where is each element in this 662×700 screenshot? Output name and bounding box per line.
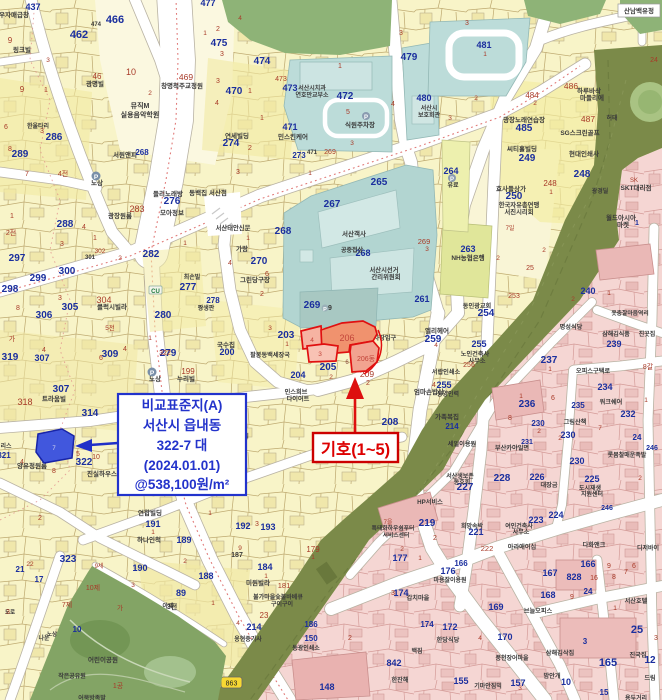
svg-text:200: 200 [219, 347, 234, 357]
svg-text:471: 471 [307, 150, 318, 156]
svg-text:2: 2 [216, 26, 220, 33]
svg-text:3: 3 [6, 609, 10, 616]
svg-text:246: 246 [646, 445, 658, 452]
svg-text:서원앤피: 서원앤피 [113, 150, 137, 159]
svg-text:319: 319 [2, 352, 19, 363]
svg-text:9: 9 [570, 594, 574, 601]
svg-text:273: 273 [292, 151, 306, 160]
svg-text:471: 471 [282, 122, 297, 132]
svg-text:10: 10 [561, 677, 571, 687]
svg-text:링크빌: 링크빌 [13, 45, 31, 54]
svg-text:265: 265 [371, 177, 388, 188]
svg-text:300: 300 [59, 266, 76, 277]
svg-text:7제: 7제 [62, 601, 72, 609]
svg-text:월드아시아: 월드아시아 [606, 213, 636, 222]
svg-text:10: 10 [73, 625, 82, 634]
svg-text:4: 4 [42, 347, 46, 354]
svg-text:177: 177 [392, 553, 407, 563]
svg-text:노인건축사: 노인건축사 [461, 350, 490, 358]
svg-text:2: 2 [474, 95, 478, 102]
svg-text:253: 253 [508, 293, 520, 300]
svg-text:3: 3 [60, 241, 64, 248]
svg-text:8: 8 [508, 415, 512, 422]
svg-text:1: 1 [548, 366, 552, 373]
svg-text:7: 7 [25, 171, 29, 178]
svg-text:17: 17 [35, 575, 44, 584]
svg-text:1: 1 [285, 341, 289, 348]
svg-text:3: 3 [350, 140, 354, 147]
svg-text:가족복집: 가족복집 [435, 412, 459, 421]
svg-text:268: 268 [275, 226, 292, 237]
svg-text:1: 1 [10, 213, 14, 220]
svg-text:드림: 드림 [644, 674, 655, 682]
svg-text:사무소: 사무소 [513, 528, 530, 536]
svg-text:가랑: 가랑 [236, 244, 248, 253]
svg-text:192: 192 [235, 521, 250, 531]
svg-text:워크쉐어: 워크쉐어 [600, 398, 623, 406]
svg-text:1: 1 [264, 573, 268, 580]
svg-text:269: 269 [418, 237, 431, 246]
svg-text:3: 3 [465, 20, 469, 27]
svg-text:16: 16 [590, 575, 598, 582]
svg-text:863: 863 [226, 681, 238, 688]
svg-text:여인건축사: 여인건축사 [505, 522, 533, 530]
svg-text:150: 150 [304, 634, 318, 643]
svg-text:2: 2 [183, 558, 187, 565]
svg-text:248: 248 [543, 179, 557, 188]
svg-text:옷충잘마음역리: 옷충잘마음역리 [611, 309, 648, 317]
svg-text:205: 205 [320, 362, 337, 373]
svg-text:239: 239 [606, 339, 621, 349]
svg-text:219: 219 [419, 518, 436, 529]
svg-text:P: P [323, 307, 327, 313]
svg-text:214: 214 [445, 422, 459, 431]
svg-text:현대인쇄사: 현대인쇄사 [569, 149, 599, 158]
svg-text:15: 15 [600, 688, 609, 697]
svg-text:6: 6 [265, 271, 269, 278]
svg-text:1: 1 [338, 63, 342, 70]
svg-text:식원주차장: 식원주차장 [345, 120, 375, 129]
svg-text:477: 477 [200, 0, 215, 8]
svg-text:@538,100원/m²: @538,100원/m² [135, 477, 230, 492]
svg-text:서산시 읍내동: 서산시 읍내동 [143, 417, 221, 433]
svg-text:삼해김식품: 삼해김식품 [602, 330, 630, 338]
svg-text:삼해김삭집: 삼해김삭집 [546, 649, 575, 657]
svg-text:166: 166 [580, 559, 595, 569]
svg-text:3: 3 [220, 51, 224, 58]
svg-text:189: 189 [176, 535, 191, 545]
svg-text:2: 2 [248, 145, 252, 152]
svg-text:307: 307 [53, 384, 70, 395]
svg-text:299: 299 [30, 273, 47, 284]
svg-text:184: 184 [257, 562, 272, 572]
svg-text:305: 305 [62, 302, 79, 313]
svg-text:3: 3 [216, 78, 220, 85]
svg-text:씨티홀빌딩: 씨티홀빌딩 [507, 144, 537, 153]
svg-text:170: 170 [497, 632, 512, 642]
svg-text:서산호텔: 서산호텔 [625, 597, 648, 605]
svg-text:SG스크린골프: SG스크린골프 [560, 128, 599, 137]
svg-text:269: 269 [304, 300, 321, 311]
svg-text:디저바이: 디저바이 [637, 544, 659, 552]
svg-text:불가마을숯불바베큐: 불가마을숯불바베큐 [253, 593, 303, 601]
svg-text:산남백유정: 산남백유정 [624, 6, 654, 15]
svg-text:옹현중기사: 옹현중기사 [234, 635, 262, 643]
svg-text:HP서비스: HP서비스 [417, 498, 443, 506]
svg-text:472: 472 [337, 91, 354, 102]
svg-text:서산생보존: 서산생보존 [446, 472, 474, 480]
svg-text:462: 462 [70, 29, 88, 41]
svg-text:2: 2 [496, 255, 500, 262]
svg-text:마켓: 마켓 [617, 220, 629, 229]
svg-text:6: 6 [4, 124, 8, 131]
svg-text:268: 268 [135, 148, 149, 157]
svg-text:176: 176 [440, 566, 455, 576]
svg-text:1: 1 [260, 115, 264, 122]
svg-text:동양인력: 동양인력 [437, 390, 459, 398]
svg-text:842: 842 [386, 658, 401, 668]
svg-text:277: 277 [180, 282, 197, 293]
svg-text:226: 226 [529, 472, 544, 482]
svg-text:3: 3 [268, 325, 272, 332]
svg-text:3: 3 [318, 351, 322, 358]
svg-text:25: 25 [526, 265, 534, 272]
svg-text:1: 1 [203, 30, 207, 37]
svg-text:3: 3 [391, 590, 395, 597]
svg-text:누리빌: 누리빌 [177, 374, 195, 383]
svg-text:323: 323 [60, 554, 77, 565]
svg-text:비교표준지(A): 비교표준지(A) [142, 398, 223, 413]
svg-text:보호회관: 보호회관 [418, 111, 441, 119]
svg-text:286: 286 [46, 132, 63, 143]
svg-text:기호(1~5): 기호(1~5) [321, 440, 390, 459]
svg-text:191: 191 [145, 519, 160, 529]
svg-text:마들리에: 마들리에 [580, 93, 604, 102]
svg-text:318: 318 [17, 397, 32, 407]
svg-text:165: 165 [599, 657, 617, 669]
svg-text:트라움빌: 트라움빌 [42, 394, 66, 403]
svg-text:235: 235 [571, 401, 585, 410]
svg-text:469: 469 [179, 72, 193, 82]
svg-text:89: 89 [176, 588, 186, 598]
svg-text:진곳집: 진곳집 [639, 330, 656, 338]
svg-text:진실하우스: 진실하우스 [87, 469, 117, 478]
svg-text:1: 1 [211, 600, 215, 607]
svg-text:1: 1 [549, 189, 553, 196]
svg-text:한당식당: 한당식당 [437, 636, 460, 644]
svg-text:1: 1 [93, 235, 97, 242]
svg-text:3: 3 [399, 30, 403, 37]
svg-text:297: 297 [9, 253, 26, 264]
svg-text:P: P [364, 115, 368, 121]
svg-text:양유정원룸: 양유정원룸 [17, 461, 47, 470]
svg-text:231: 231 [521, 439, 533, 446]
svg-text:302: 302 [95, 248, 106, 255]
svg-text:3: 3 [255, 521, 259, 528]
svg-text:6: 6 [551, 395, 555, 402]
svg-text:1: 1 [635, 220, 639, 227]
svg-text:204: 204 [290, 370, 305, 380]
svg-text:322-7 대: 322-7 대 [157, 438, 208, 453]
svg-text:희망속박: 희망속박 [461, 522, 484, 530]
svg-text:24: 24 [650, 57, 658, 64]
svg-text:SKT대리점: SKT대리점 [621, 183, 652, 192]
svg-text:21: 21 [16, 565, 25, 574]
svg-text:서산시선거: 서산시선거 [370, 265, 399, 274]
svg-text:214: 214 [246, 622, 261, 632]
svg-text:4: 4 [215, 100, 219, 107]
svg-text:228: 228 [494, 473, 511, 484]
svg-text:168: 168 [540, 590, 555, 600]
svg-text:237: 237 [541, 355, 558, 366]
svg-text:백짐: 백짐 [411, 647, 422, 655]
svg-text:3: 3 [236, 169, 240, 176]
svg-text:4: 4 [238, 15, 242, 22]
svg-text:서랍인쇄소: 서랍인쇄소 [432, 368, 461, 376]
svg-text:1: 1 [519, 393, 523, 400]
svg-text:236: 236 [519, 399, 536, 410]
svg-text:206: 206 [339, 333, 354, 343]
svg-text:2: 2 [433, 535, 437, 542]
svg-text:473: 473 [282, 83, 297, 93]
svg-text:민스킨케어: 민스킨케어 [278, 132, 308, 141]
svg-text:간리위원회: 간리위원회 [372, 272, 401, 281]
svg-text:구이구이: 구이구이 [271, 600, 293, 608]
svg-text:1: 1 [208, 510, 212, 517]
svg-text:255: 255 [471, 339, 486, 349]
svg-text:470: 470 [226, 86, 243, 97]
svg-text:마용잘이용원: 마용잘이용원 [433, 576, 466, 584]
svg-text:2: 2 [148, 90, 152, 97]
svg-text:474: 474 [91, 22, 102, 28]
svg-text:309: 309 [102, 349, 119, 360]
svg-text:225: 225 [584, 474, 599, 484]
svg-text:가: 가 [9, 334, 16, 343]
svg-text:9: 9 [328, 305, 332, 312]
svg-text:동인광교회: 동인광교회 [463, 302, 492, 310]
svg-text:실용음악학원: 실용음악학원 [121, 110, 160, 119]
svg-text:명성식당: 명성식당 [560, 323, 583, 331]
svg-text:1: 1 [183, 240, 187, 247]
svg-text:SK: SK [630, 178, 638, 184]
svg-text:203: 203 [278, 330, 295, 341]
svg-text:2: 2 [571, 296, 575, 303]
svg-text:4: 4 [82, 224, 86, 231]
svg-text:487: 487 [581, 114, 595, 124]
svg-text:166: 166 [454, 559, 468, 568]
svg-text:187: 187 [231, 552, 243, 559]
svg-text:485: 485 [516, 123, 533, 134]
svg-text:그림산책: 그림산책 [564, 418, 587, 426]
svg-text:한울타리: 한울타리 [27, 122, 49, 130]
svg-text:대장금: 대장금 [540, 481, 557, 489]
svg-text:270: 270 [251, 256, 268, 267]
svg-text:창명척주교정원: 창명척주교정원 [161, 81, 203, 90]
svg-text:다이어트: 다이어트 [287, 395, 310, 403]
svg-text:1: 1 [644, 397, 648, 404]
svg-text:9: 9 [238, 545, 242, 552]
svg-text:199: 199 [181, 367, 195, 376]
svg-text:3: 3 [46, 57, 50, 64]
svg-text:8: 8 [612, 574, 616, 581]
svg-text:(2024.01.01): (2024.01.01) [144, 458, 221, 473]
svg-text:306: 306 [36, 310, 53, 321]
svg-text:광장원룸: 광장원룸 [108, 211, 132, 220]
svg-text:181: 181 [278, 581, 291, 590]
svg-text:4: 4 [310, 337, 314, 344]
svg-text:2: 2 [537, 428, 541, 435]
svg-text:255: 255 [436, 380, 451, 390]
svg-text:2: 2 [348, 635, 352, 642]
svg-text:롯봄찰매운족발: 롯봄찰매운족발 [608, 451, 647, 459]
svg-text:하나인척: 하나인척 [137, 535, 161, 544]
svg-text:3: 3 [425, 246, 429, 253]
svg-text:479: 479 [401, 52, 418, 63]
svg-text:3: 3 [518, 685, 522, 692]
svg-text:278: 278 [206, 296, 220, 305]
svg-text:186: 186 [304, 620, 318, 629]
svg-text:1: 1 [248, 88, 252, 95]
svg-text:광경딜: 광경딜 [592, 187, 609, 195]
svg-text:263: 263 [460, 244, 475, 254]
svg-text:224: 224 [548, 510, 563, 520]
svg-text:2: 2 [260, 291, 264, 298]
svg-text:206동: 206동 [357, 355, 376, 363]
svg-text:1: 1 [151, 529, 155, 536]
svg-text:179: 179 [306, 545, 320, 554]
svg-text:484: 484 [525, 91, 539, 100]
svg-text:1: 1 [308, 170, 312, 177]
svg-text:148: 148 [319, 682, 334, 692]
svg-text:9: 9 [8, 36, 13, 45]
svg-text:최손빌: 최손빌 [184, 273, 201, 281]
svg-text:1: 1 [418, 555, 422, 562]
svg-text:24: 24 [633, 433, 642, 442]
svg-text:세일이용원: 세일이용원 [448, 440, 477, 448]
svg-text:282: 282 [143, 249, 160, 260]
svg-text:167: 167 [542, 568, 557, 578]
svg-text:234: 234 [597, 382, 612, 392]
svg-text:광명빌: 광명빌 [86, 79, 104, 88]
svg-text:3: 3 [131, 582, 135, 589]
svg-text:280: 280 [155, 310, 172, 321]
svg-text:246: 246 [601, 505, 613, 512]
svg-text:작은공유원: 작은공유원 [58, 672, 86, 680]
svg-text:230: 230 [569, 456, 584, 466]
svg-text:미원빌라: 미원빌라 [246, 578, 270, 587]
svg-text:9: 9 [607, 563, 611, 570]
svg-text:193: 193 [260, 522, 275, 532]
svg-text:2: 2 [558, 435, 562, 442]
svg-text:밤안개: 밤안개 [543, 672, 560, 680]
svg-text:1: 1 [483, 51, 487, 58]
svg-text:480: 480 [416, 93, 431, 103]
svg-text:4: 4 [391, 101, 395, 108]
svg-text:24: 24 [584, 587, 593, 596]
svg-text:서산태안신문: 서산태안신문 [216, 223, 251, 232]
svg-text:4: 4 [236, 620, 240, 627]
svg-text:연호만교부소: 연호만교부소 [295, 91, 329, 99]
svg-text:264: 264 [443, 166, 458, 176]
svg-text:9: 9 [20, 85, 25, 94]
svg-text:4: 4 [434, 342, 438, 349]
svg-text:다화앤크: 다화앤크 [583, 541, 606, 549]
svg-text:10제: 10제 [86, 584, 100, 592]
svg-text:도시재생: 도시재생 [579, 484, 602, 492]
svg-text:2: 2 [400, 546, 404, 553]
svg-text:298: 298 [2, 284, 19, 295]
svg-text:169: 169 [488, 602, 503, 612]
svg-text:8갈: 8갈 [643, 363, 654, 371]
svg-text:8: 8 [16, 305, 20, 312]
svg-text:22: 22 [26, 561, 34, 568]
svg-text:8: 8 [52, 468, 56, 475]
svg-text:230: 230 [531, 419, 545, 428]
svg-text:2전: 2전 [6, 228, 16, 237]
svg-text:230: 230 [560, 430, 575, 440]
svg-text:828: 828 [566, 572, 581, 582]
svg-text:2: 2 [366, 380, 370, 387]
svg-text:리스: 리스 [0, 442, 12, 450]
svg-text:갑치마을: 갑치마을 [407, 594, 430, 602]
svg-text:3전: 3전 [167, 602, 177, 611]
svg-text:6: 6 [632, 563, 636, 570]
svg-text:2: 2 [533, 100, 537, 107]
svg-text:322: 322 [159, 350, 171, 357]
svg-text:하루바삭: 하루바삭 [577, 86, 601, 95]
svg-text:특태화하우쉼푸터: 특태화하우쉼푸터 [372, 524, 415, 532]
svg-text:2: 2 [542, 247, 546, 254]
svg-text:240: 240 [580, 286, 595, 296]
svg-text:267: 267 [324, 199, 341, 210]
svg-text:모아정보: 모아정보 [160, 208, 184, 217]
svg-text:288: 288 [57, 219, 74, 230]
svg-text:3: 3 [583, 637, 588, 646]
svg-text:기마안짐믹: 기마안짐믹 [474, 682, 502, 690]
svg-text:노상: 노상 [47, 630, 57, 638]
svg-text:2: 2 [329, 374, 333, 381]
svg-text:5전: 5전 [105, 323, 115, 332]
svg-text:289: 289 [12, 149, 29, 160]
svg-text:25: 25 [631, 624, 643, 636]
svg-text:261: 261 [414, 294, 429, 304]
svg-text:연합빌딩: 연합빌딩 [138, 508, 162, 517]
svg-text:190: 190 [132, 563, 147, 573]
svg-text:322: 322 [76, 457, 93, 468]
svg-text:155: 155 [453, 676, 468, 686]
svg-text:269: 269 [324, 149, 336, 156]
svg-text:23: 23 [260, 611, 269, 620]
svg-text:한잔해: 한잔해 [391, 676, 408, 684]
svg-text:10: 10 [92, 454, 100, 461]
svg-text:466: 466 [106, 14, 124, 26]
svg-text:188: 188 [198, 571, 213, 581]
svg-text:1: 1 [613, 605, 617, 612]
svg-text:효사들상가: 효사들상가 [496, 184, 526, 193]
svg-text:3: 3 [654, 635, 658, 642]
svg-text:서산시치과: 서산시치과 [298, 84, 326, 92]
svg-text:3: 3 [58, 295, 62, 302]
svg-text:1: 1 [246, 235, 250, 242]
svg-text:클럭시빌라: 클럭시빌라 [97, 302, 127, 311]
svg-text:5: 5 [76, 451, 80, 458]
svg-text:동호회: 동호회 [454, 478, 471, 486]
svg-text:174: 174 [420, 620, 434, 629]
svg-text:서진시리회: 서진시리회 [505, 207, 534, 216]
svg-text:1: 1 [607, 290, 611, 297]
svg-text:4: 4 [478, 635, 482, 642]
svg-text:232: 232 [620, 409, 635, 419]
